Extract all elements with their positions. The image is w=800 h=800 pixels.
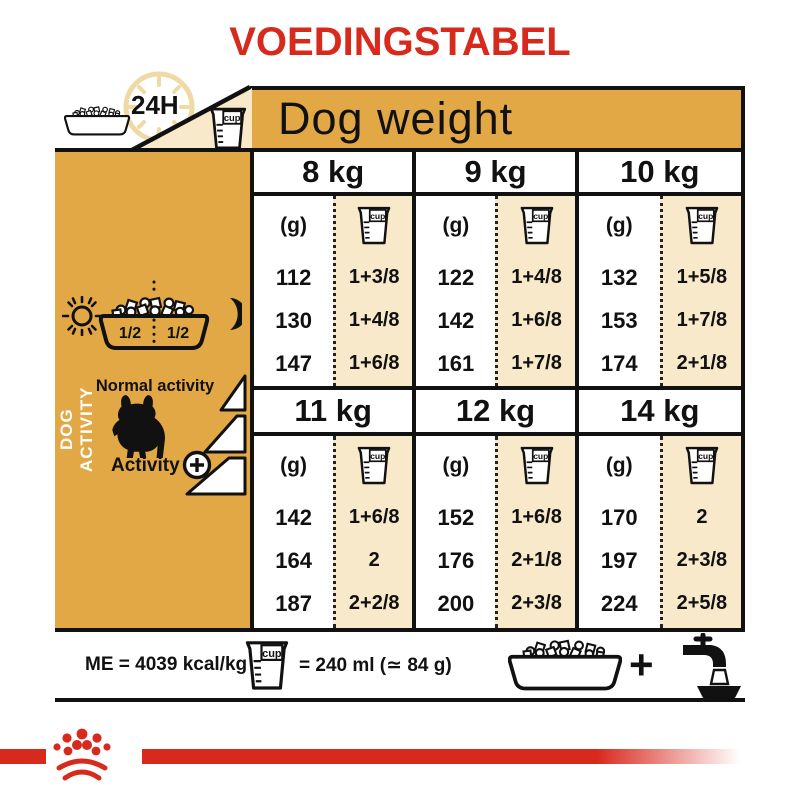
- grams-value: 161: [438, 342, 475, 385]
- activity-triangle-low: [221, 376, 245, 410]
- cup-icon: [520, 436, 554, 496]
- measuring-cup-icon: [245, 639, 289, 693]
- bulldog-icon: [105, 392, 169, 460]
- feeding-cell-9kg: (g) 122 142 161 1+4/8 1+6/8 1+7/8: [416, 196, 578, 390]
- grams-unit-label: (g): [606, 436, 633, 496]
- grams-column: (g) 112 130 147: [254, 196, 333, 386]
- half-label-left: 1/2: [119, 325, 141, 342]
- page-title: VOEDINGSTABEL: [0, 20, 800, 65]
- cups-value: 2+3/8: [677, 539, 728, 582]
- food-bowl-icon: [64, 95, 130, 149]
- grams-value: 170: [601, 496, 638, 539]
- feeding-cell-8kg: (g) 112 130 147 1+3/8 1+4/8 1+6/8: [254, 196, 416, 390]
- metabolizable-energy-label: ME = 4039 kcal/kg: [85, 632, 247, 698]
- grams-value: 130: [275, 299, 312, 342]
- dog-activity-vertical-label: DOG ACTIVITY: [57, 370, 83, 488]
- dog-activity-sidebar: 1/2 1/2 DOG ACTIVITY Normal activity Act…: [55, 148, 250, 632]
- grams-unit-label: (g): [280, 436, 307, 496]
- dog-weight-label: Dog weight: [250, 93, 513, 145]
- cups-value: 1+6/8: [511, 496, 562, 539]
- grams-value: 132: [601, 256, 638, 299]
- cups-value: 1+4/8: [349, 299, 400, 342]
- grams-value: 174: [601, 342, 638, 385]
- grams-column: (g) 142 164 187: [254, 436, 333, 628]
- weight-header-10kg: 10 kg: [579, 152, 741, 196]
- sun-icon: [62, 296, 102, 336]
- grams-value: 197: [601, 539, 638, 582]
- brand-stripe-right: [142, 749, 740, 764]
- half-ration-bowl-icon: 1/2 1/2: [97, 280, 211, 360]
- grams-unit-label: (g): [442, 436, 469, 496]
- cup-icon: [357, 436, 391, 496]
- moon-icon: [212, 296, 242, 332]
- cups-value: 2+3/8: [511, 582, 562, 625]
- grams-unit-label: (g): [280, 196, 307, 256]
- cups-value: 2+1/8: [677, 342, 728, 385]
- cup-equivalence-label: = 240 ml (≃ 84 g): [299, 632, 452, 698]
- cups-value: 1+6/8: [511, 299, 562, 342]
- grams-value: 153: [601, 299, 638, 342]
- cups-column: 1+6/8 2+1/8 2+3/8: [495, 436, 574, 628]
- feeding-grid: 8 kg 9 kg 10 kg (g) 112 130 147 1+3/8 1+…: [250, 148, 745, 632]
- grams-value: 187: [275, 582, 312, 625]
- grams-value: 112: [276, 256, 312, 299]
- cups-value: 1+3/8: [349, 256, 400, 299]
- cups-value: 1+7/8: [511, 342, 562, 385]
- grams-unit-label: (g): [442, 196, 469, 256]
- cups-value: 2+1/8: [511, 539, 562, 582]
- feeding-cell-12kg: (g) 152 176 200 1+6/8 2+1/8 2+3/8: [416, 436, 578, 628]
- half-label-right: 1/2: [167, 325, 189, 342]
- grams-value: 224: [601, 582, 638, 625]
- paw-crown-logo: [50, 728, 114, 788]
- feeding-table-page: VOEDINGSTABEL 24H Dog weight: [0, 0, 800, 800]
- cup-icon: [685, 196, 719, 256]
- feeding-cell-14kg: (g) 170 197 224 2 2+3/8 2+5/8: [579, 436, 741, 628]
- cups-column: 2 2+3/8 2+5/8: [660, 436, 741, 628]
- grams-value: 122: [438, 256, 475, 299]
- cups-value: 2: [369, 539, 380, 582]
- cups-column: 1+5/8 1+7/8 2+1/8: [660, 196, 741, 386]
- plus-sign: +: [629, 632, 654, 698]
- weight-header-14kg: 14 kg: [579, 390, 741, 436]
- kibble-bowl-icon: [505, 638, 625, 696]
- cups-column: 1+4/8 1+6/8 1+7/8: [495, 196, 574, 386]
- grams-value: 142: [438, 299, 475, 342]
- cups-value: 1+7/8: [677, 299, 728, 342]
- cup-icon: [685, 436, 719, 496]
- grams-column: (g) 132 153 174: [579, 196, 660, 386]
- feeding-cell-11kg: (g) 142 164 187 1+6/8 2 2+2/8: [254, 436, 416, 628]
- cups-value: 1+5/8: [677, 256, 728, 299]
- grams-value: 176: [438, 539, 475, 582]
- brand-stripe-left: [0, 749, 46, 764]
- grams-value: 142: [275, 496, 312, 539]
- grams-column: (g) 122 142 161: [416, 196, 495, 386]
- cups-value: 2+5/8: [677, 582, 728, 625]
- weight-header-9kg: 9 kg: [416, 152, 578, 196]
- grams-value: 147: [275, 342, 312, 385]
- activity-triangle-mid: [205, 416, 245, 452]
- cup-icon: [357, 196, 391, 256]
- cups-value: 1+6/8: [349, 496, 400, 539]
- weight-header-11kg: 11 kg: [254, 390, 416, 436]
- cups-column: 1+3/8 1+4/8 1+6/8: [333, 196, 412, 386]
- measuring-cup-icon: [209, 107, 247, 151]
- water-faucet-icon: [657, 633, 747, 701]
- cups-column: 1+6/8 2 2+2/8: [333, 436, 412, 628]
- grams-column: (g) 152 176 200: [416, 436, 495, 628]
- plus-circle-icon: [181, 449, 213, 481]
- grams-value: 200: [438, 582, 475, 625]
- feeding-cell-10kg: (g) 132 153 174 1+5/8 1+7/8 2+1/8: [579, 196, 741, 390]
- footer-strip: ME = 4039 kcal/kg = 240 ml (≃ 84 g) +: [55, 632, 745, 702]
- dog-weight-header: Dog weight: [250, 86, 745, 152]
- weight-header-8kg: 8 kg: [254, 152, 416, 196]
- cup-icon: [520, 196, 554, 256]
- grams-unit-label: (g): [606, 196, 633, 256]
- cups-value: 2: [696, 496, 707, 539]
- grams-value: 152: [438, 496, 475, 539]
- activity-label: Activity: [111, 455, 180, 477]
- cups-value: 1+4/8: [511, 256, 562, 299]
- grams-column: (g) 170 197 224: [579, 436, 660, 628]
- grams-value: 164: [275, 539, 312, 582]
- cups-value: 2+2/8: [349, 582, 400, 625]
- weight-header-12kg: 12 kg: [416, 390, 578, 436]
- cups-value: 1+6/8: [349, 342, 400, 385]
